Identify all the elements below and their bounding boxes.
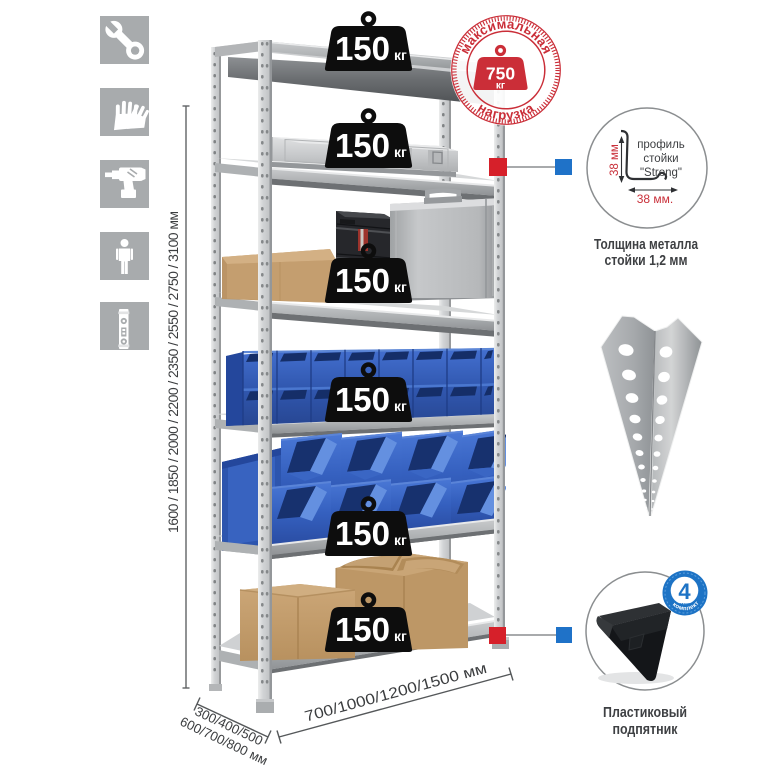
svg-text:38 мм: 38 мм <box>609 144 621 176</box>
svg-text:"Strong": "Strong" <box>640 167 682 179</box>
svg-text:Пластиковый: Пластиковый <box>603 704 687 721</box>
svg-text:1600 / 1850 / 2000 / 2200 / 23: 1600 / 1850 / 2000 / 2200 / 2350 / 2550 … <box>165 211 181 533</box>
svg-text:кг: кг <box>496 81 505 92</box>
svg-text:38 мм.: 38 мм. <box>637 192 674 206</box>
svg-text:кг: кг <box>394 398 407 414</box>
svg-text:кг: кг <box>394 47 407 63</box>
svg-text:стойки 1,2 мм: стойки 1,2 мм <box>605 253 688 269</box>
svg-text:стойки: стойки <box>643 153 678 165</box>
svg-text:профиль: профиль <box>637 139 685 151</box>
svg-text:кг: кг <box>394 628 407 644</box>
svg-text:подпятник: подпятник <box>613 721 678 738</box>
svg-text:150: 150 <box>335 611 390 648</box>
svg-text:150: 150 <box>335 262 390 299</box>
svg-text:кг: кг <box>394 532 407 548</box>
svg-text:4: 4 <box>678 579 691 604</box>
svg-text:150: 150 <box>335 381 390 418</box>
svg-text:150: 150 <box>335 515 390 552</box>
svg-text:150: 150 <box>335 30 390 67</box>
svg-text:150: 150 <box>335 127 390 164</box>
svg-text:Толщина металла: Толщина металла <box>594 237 699 253</box>
svg-text:кг: кг <box>394 144 407 160</box>
svg-text:кг: кг <box>394 279 407 295</box>
